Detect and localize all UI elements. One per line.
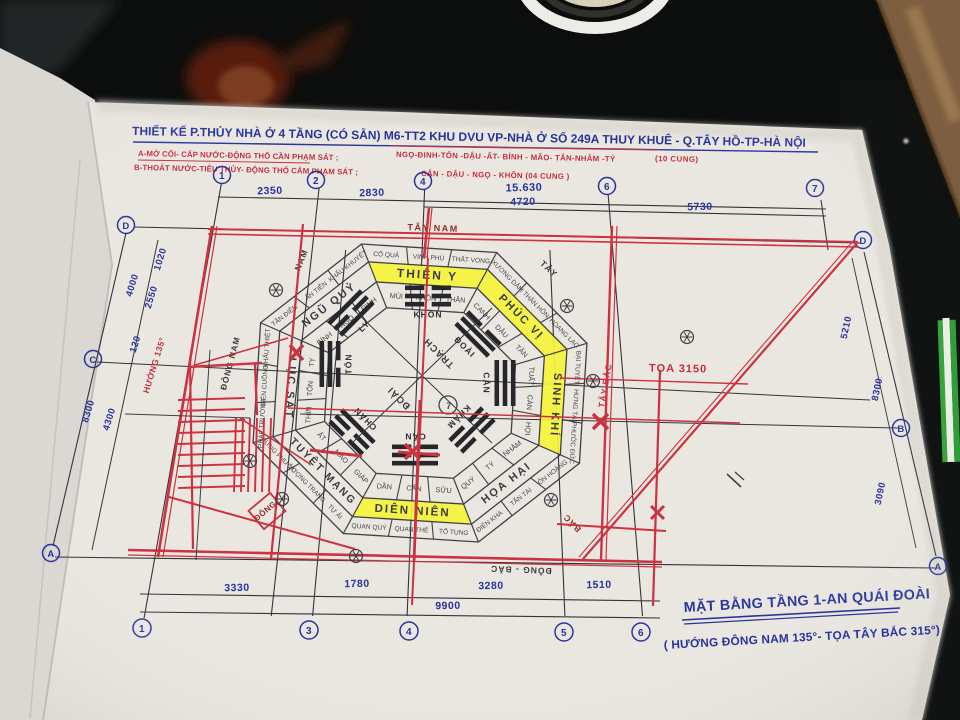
svg-text:C: C <box>89 355 96 366</box>
svg-text:A: A <box>47 549 54 560</box>
